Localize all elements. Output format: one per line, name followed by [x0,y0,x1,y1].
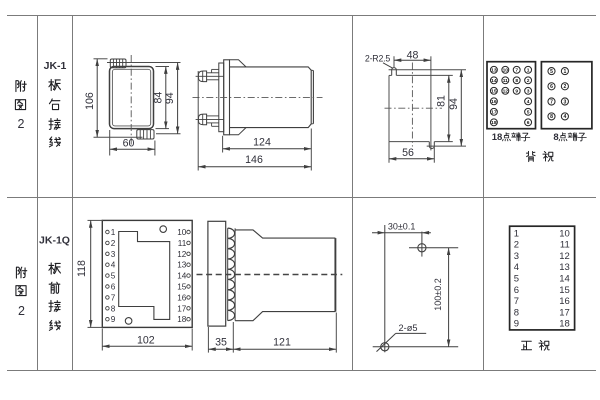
svg-text:18: 18 [177,315,187,324]
svg-text:2: 2 [563,84,566,90]
svg-text:9: 9 [111,315,116,324]
svg-text:94: 94 [164,92,176,104]
svg-text:7: 7 [550,99,553,105]
svg-text:14: 14 [559,274,570,285]
svg-text:48: 48 [407,50,419,62]
svg-text:5: 5 [111,272,116,281]
svg-text:4: 4 [111,261,116,270]
svg-text:16: 16 [177,293,187,302]
svg-text:11: 11 [503,78,508,84]
svg-text:2: 2 [111,239,116,248]
svg-text:2: 2 [527,78,530,84]
svg-text:6: 6 [550,84,553,90]
svg-text:5: 5 [514,274,519,285]
svg-text:146: 146 [245,154,263,166]
svg-text:12: 12 [503,89,509,95]
svg-text:81: 81 [436,95,448,107]
svg-text:18: 18 [491,120,497,126]
svg-text:7: 7 [111,293,116,302]
svg-text:14: 14 [177,272,187,281]
svg-text:84: 84 [152,92,164,104]
svg-text:12: 12 [559,251,570,262]
svg-text:13: 13 [491,68,497,74]
svg-text:6: 6 [111,283,116,292]
svg-text:10: 10 [559,228,570,239]
svg-text:15: 15 [491,89,497,95]
svg-text:1: 1 [563,69,566,75]
svg-text:14: 14 [491,78,497,84]
svg-text:2-R2.5: 2-R2.5 [365,54,391,64]
svg-text:106: 106 [84,92,96,110]
svg-text:2: 2 [18,304,25,318]
svg-text:17: 17 [491,110,497,116]
svg-text:4: 4 [514,262,519,273]
svg-text:124: 124 [253,136,271,148]
svg-text:16: 16 [559,296,570,307]
svg-text:3: 3 [514,251,519,262]
svg-text:17: 17 [559,307,570,318]
svg-text:2: 2 [18,117,25,131]
svg-text:60: 60 [123,138,135,150]
svg-text:JK-1: JK-1 [44,60,67,72]
svg-text:102: 102 [137,335,155,347]
svg-text:3: 3 [111,250,116,259]
svg-text:4: 4 [527,99,530,105]
svg-text:10: 10 [177,228,187,237]
svg-text:35: 35 [215,337,227,349]
svg-text:15: 15 [177,283,187,292]
svg-text:56: 56 [402,147,414,159]
svg-text:18: 18 [492,132,503,143]
svg-text:9: 9 [514,319,519,330]
svg-text:5: 5 [527,110,530,116]
svg-text:6: 6 [514,285,519,296]
svg-text:1: 1 [527,68,530,74]
svg-text:1: 1 [111,228,116,237]
svg-text:11: 11 [178,239,187,248]
svg-text:30±0.1: 30±0.1 [388,221,415,231]
svg-text:2-ø5: 2-ø5 [399,323,418,333]
svg-text:8: 8 [553,132,558,143]
svg-text:13: 13 [559,262,570,273]
svg-text:8: 8 [550,114,553,120]
svg-text:7: 7 [515,68,518,74]
svg-text:9: 9 [515,89,518,95]
svg-text:17: 17 [177,304,187,313]
svg-text:6: 6 [527,120,530,126]
svg-text:18: 18 [559,319,570,330]
svg-text:15: 15 [559,285,570,296]
svg-text:12: 12 [177,250,187,259]
svg-text:11: 11 [560,240,570,251]
svg-text:118: 118 [76,260,88,277]
svg-text:5: 5 [550,69,553,75]
svg-text:4: 4 [563,114,566,120]
svg-text:8: 8 [111,304,116,313]
svg-text:13: 13 [177,261,187,270]
svg-text:121: 121 [273,337,291,349]
svg-text:8: 8 [514,307,519,318]
svg-text:16: 16 [491,99,497,105]
svg-text:8: 8 [515,78,518,84]
svg-text:2: 2 [514,240,519,251]
svg-text:1: 1 [514,228,519,239]
svg-text:10: 10 [503,68,509,74]
svg-text:7: 7 [514,296,519,307]
svg-text:3: 3 [527,89,530,95]
svg-text:94: 94 [448,98,460,110]
svg-text:JK-1Q: JK-1Q [39,235,70,247]
svg-text:100±0.2: 100±0.2 [433,278,443,310]
svg-text:3: 3 [563,99,566,105]
